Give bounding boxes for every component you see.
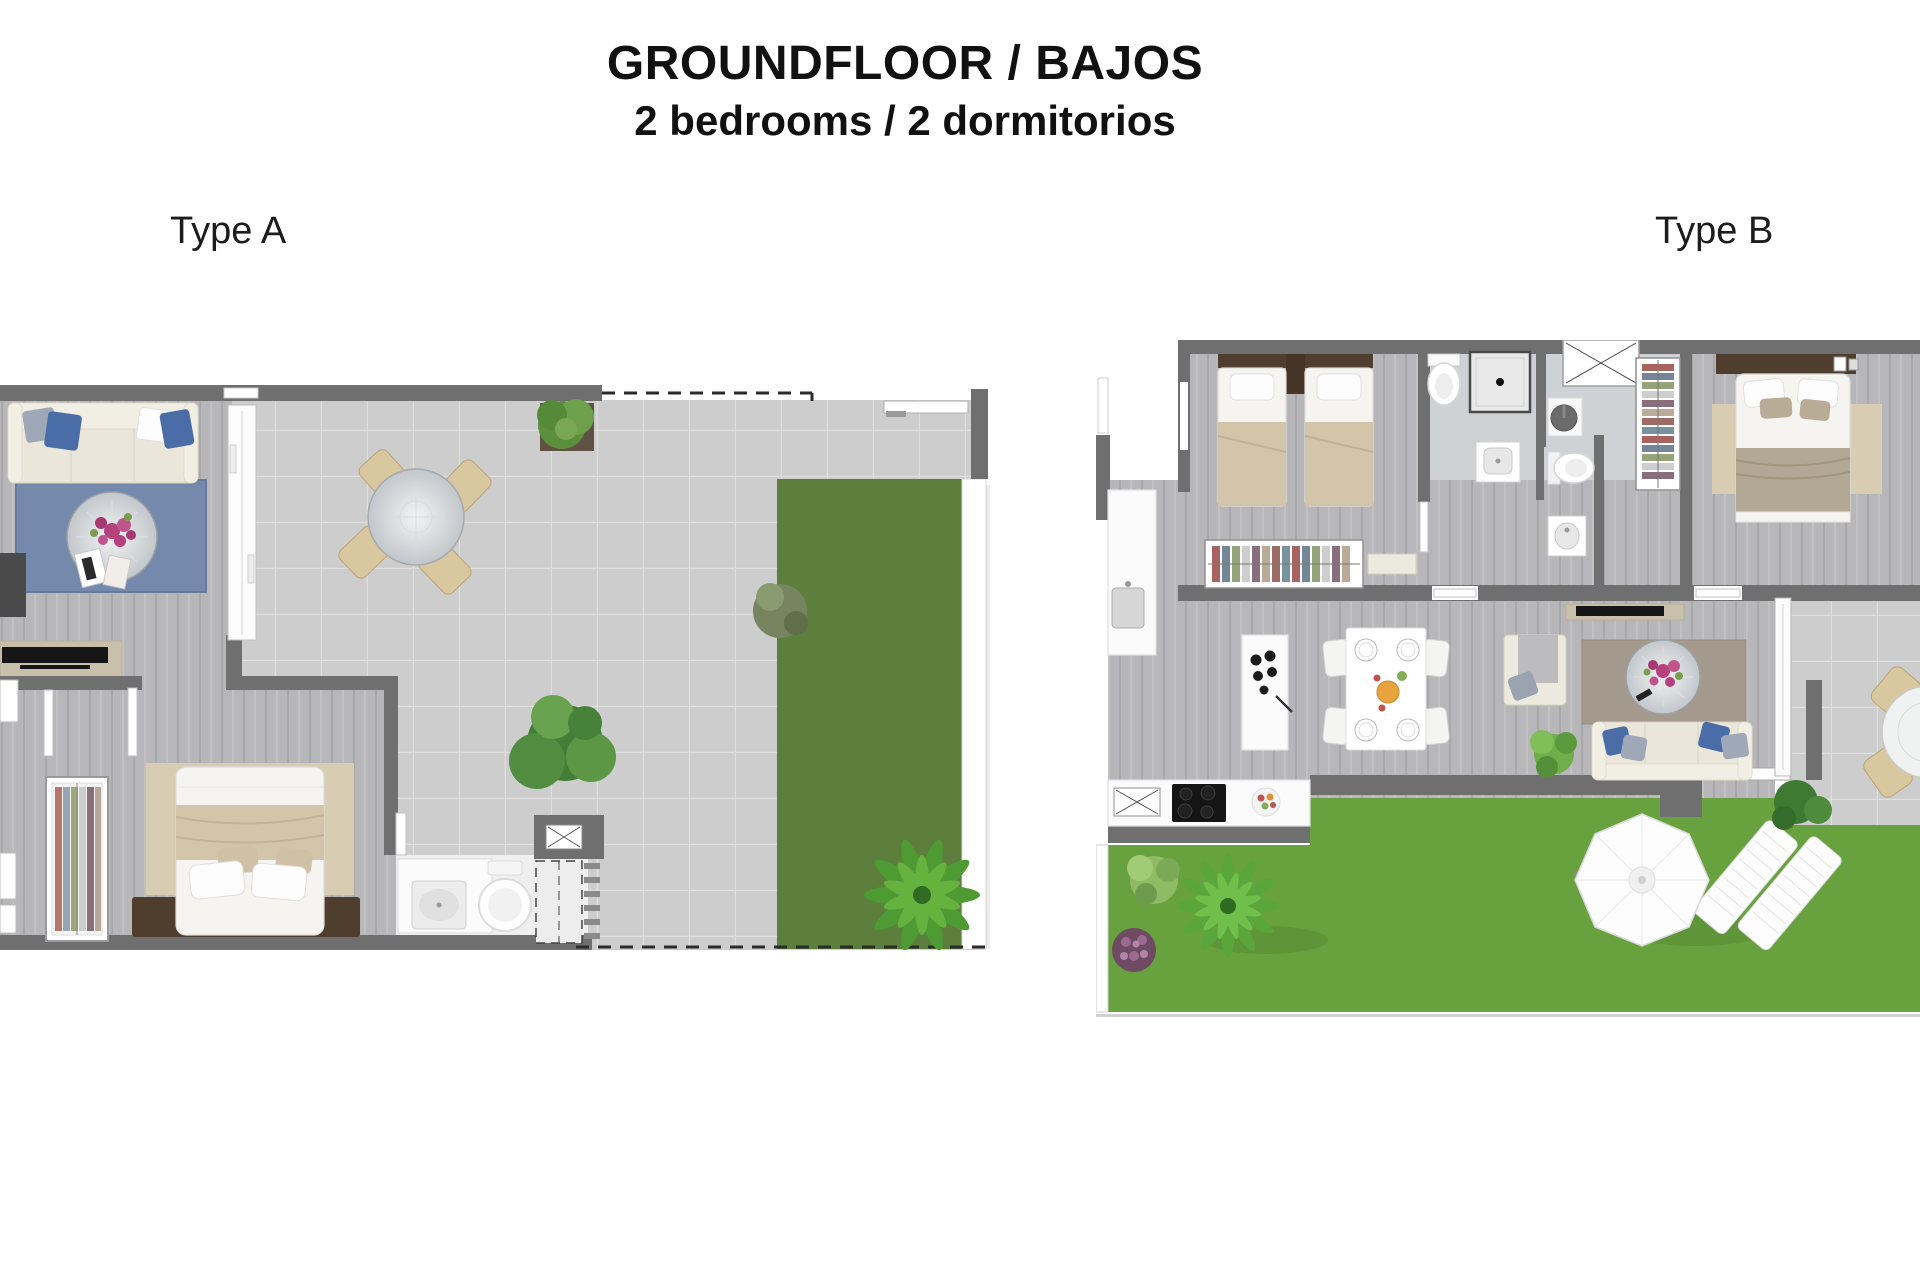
shower-drain	[1496, 378, 1504, 386]
type-b-label: Type B	[1655, 210, 1773, 253]
cropped-cabinet	[0, 853, 16, 899]
garden-low-wall	[962, 479, 986, 949]
wall	[1536, 352, 1546, 447]
headboard	[1305, 354, 1373, 368]
wall	[971, 389, 988, 479]
window	[1098, 378, 1108, 433]
picture-frame	[1834, 357, 1846, 371]
window	[1180, 382, 1188, 450]
wardrobe	[1636, 358, 1680, 490]
sliding-glass-door	[228, 405, 256, 640]
entry-door-window	[1563, 340, 1639, 386]
wall	[1418, 352, 1430, 502]
nightstand	[1286, 354, 1305, 394]
door	[128, 688, 137, 756]
wall	[1778, 585, 1920, 601]
kitchen-island	[1242, 635, 1292, 750]
gray-pillow	[1720, 732, 1749, 759]
armchair	[1504, 635, 1566, 705]
wall	[0, 385, 602, 401]
cropped-cabinet	[0, 680, 18, 722]
tv-console	[0, 641, 122, 677]
door	[396, 813, 406, 855]
kitchen-sink	[1112, 588, 1144, 628]
round-coffee-table	[1626, 640, 1700, 714]
double-bed	[1736, 374, 1850, 522]
wall	[1594, 435, 1604, 585]
picture-frame	[1849, 359, 1858, 370]
single-bed	[1305, 368, 1373, 506]
type-b-floorplan	[1096, 340, 1920, 1050]
gate-latch	[886, 411, 906, 417]
headboard	[1218, 354, 1286, 368]
wall	[1536, 440, 1544, 500]
type-a-label: Type A	[170, 210, 286, 253]
tv-console	[1566, 604, 1684, 620]
garden-wall	[1108, 825, 1310, 843]
wall	[226, 676, 398, 690]
potted-grass-plant	[537, 399, 594, 451]
garden-fence	[1096, 845, 1108, 1012]
garden-wall	[1660, 775, 1702, 817]
shower	[536, 861, 582, 943]
pillow	[188, 860, 245, 899]
wardrobe	[1205, 540, 1363, 588]
cropped-cabinet	[0, 905, 16, 933]
toilet-tank	[488, 861, 522, 875]
flowering-bush	[1112, 928, 1156, 972]
door	[1420, 502, 1428, 552]
sheet-title: GROUNDFLOOR / BAJOS	[0, 34, 1810, 94]
sheet-header: GROUNDFLOOR / BAJOS 2 bedrooms / 2 dormi…	[0, 34, 1810, 149]
door	[44, 690, 53, 756]
floorplan-sheet: GROUNDFLOOR / BAJOS 2 bedrooms / 2 dormi…	[0, 0, 1920, 1280]
sofa	[8, 403, 198, 483]
utility-block-window	[534, 815, 604, 859]
property-line-dashed	[602, 393, 812, 401]
wall	[0, 676, 142, 690]
type-a-floorplan	[0, 385, 990, 965]
sofa	[1592, 721, 1752, 780]
shadow	[986, 485, 990, 949]
fruit	[1377, 681, 1399, 703]
wall	[1178, 340, 1920, 354]
bathroom	[398, 859, 582, 943]
window	[224, 388, 258, 398]
wall	[1680, 352, 1692, 585]
boundary-line	[1096, 1014, 1920, 1017]
wall	[1806, 680, 1822, 780]
wardrobe	[46, 777, 108, 941]
kitchen-back-counter	[1108, 780, 1310, 826]
single-bed	[1218, 368, 1286, 506]
sliding-glass-door	[1775, 598, 1791, 776]
door	[1434, 589, 1476, 597]
fruit-bowl	[1252, 788, 1280, 816]
desk	[1368, 554, 1416, 574]
pillow	[251, 863, 308, 902]
kitchen-counter	[1108, 490, 1156, 655]
gray-pillow	[1620, 734, 1648, 762]
cropped-cabinet	[0, 553, 26, 617]
blue-pillow	[159, 409, 195, 450]
door	[1696, 589, 1740, 597]
blue-pillow	[44, 411, 83, 451]
sheet-subtitle: 2 bedrooms / 2 dormitorios	[0, 94, 1810, 149]
